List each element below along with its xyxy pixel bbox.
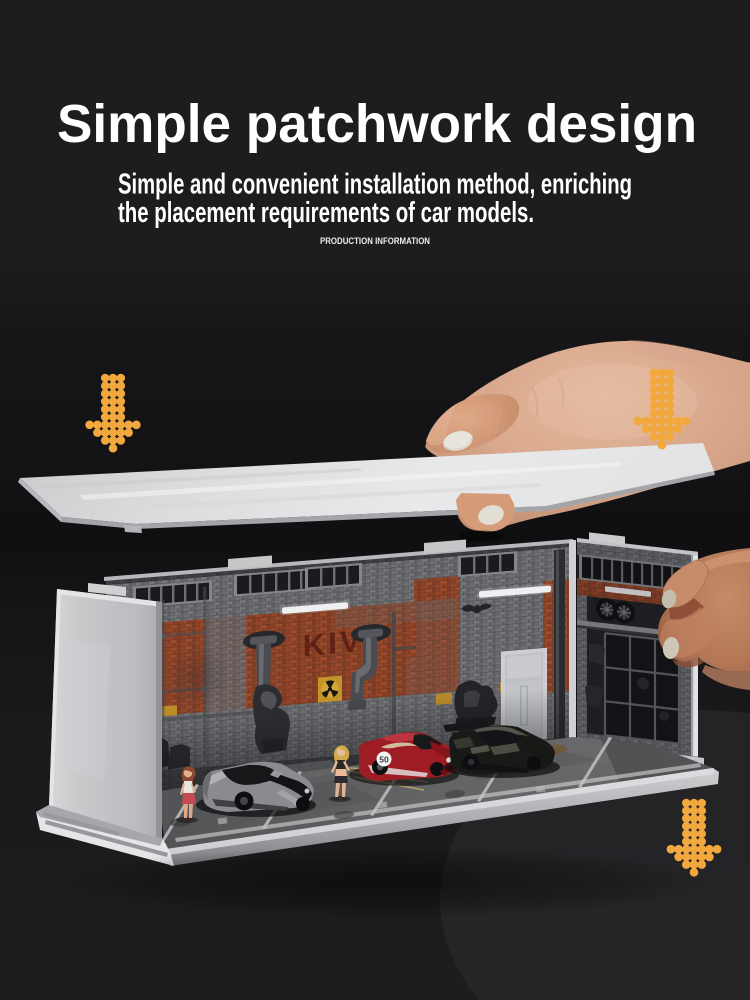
svg-text:the placement requirements of: the placement requirements of car models… bbox=[118, 197, 534, 229]
svg-text:Simple and convenient installa: Simple and convenient installation metho… bbox=[118, 169, 632, 201]
svg-text:PRODUCTION INFORMATION: PRODUCTION INFORMATION bbox=[320, 236, 430, 247]
svg-text:Simple patchwork design: Simple patchwork design bbox=[57, 94, 697, 154]
svg-text:KIV: KIV bbox=[303, 623, 364, 664]
svg-text:50: 50 bbox=[379, 755, 389, 765]
